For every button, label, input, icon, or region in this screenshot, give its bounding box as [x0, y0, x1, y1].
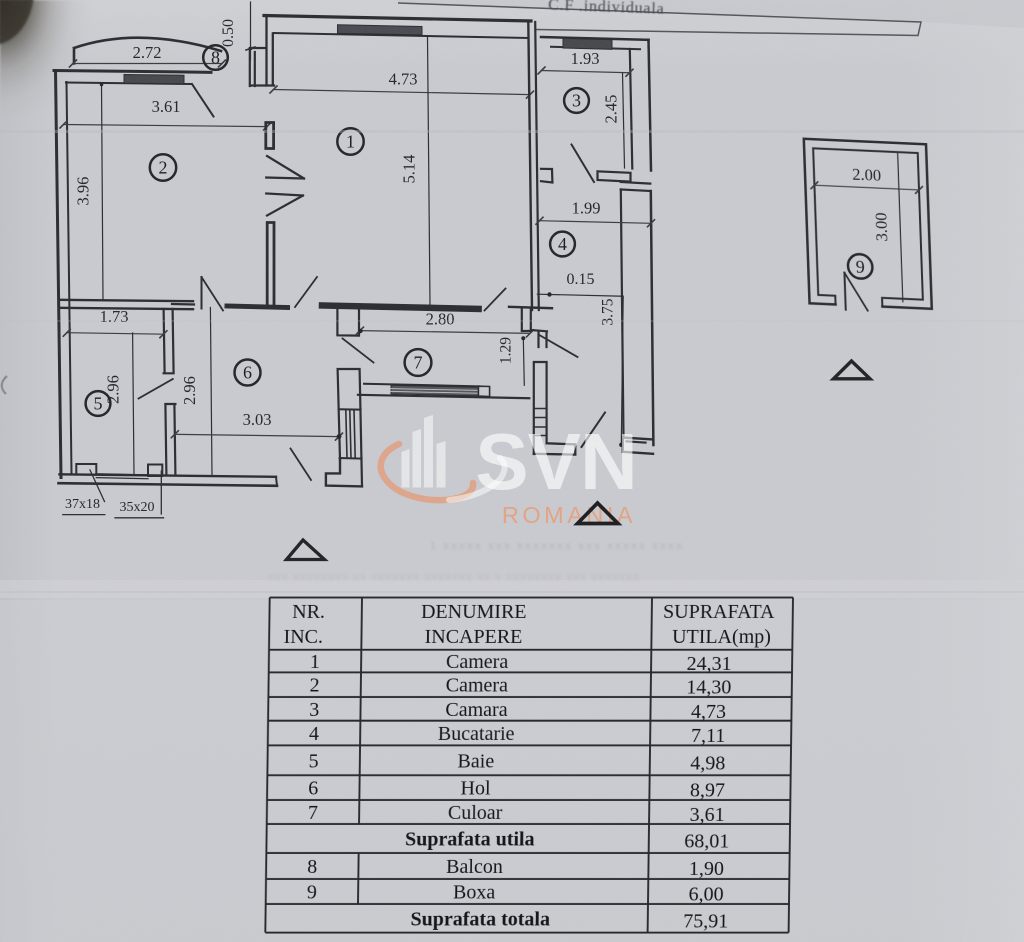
svg-text:NR.: NR.: [292, 601, 325, 623]
svg-text:68,01: 68,01: [684, 831, 729, 853]
svg-text:Culoar: Culoar: [448, 802, 503, 824]
svg-text:Baie: Baie: [457, 750, 494, 772]
svg-text:Balcon: Balcon: [446, 856, 503, 878]
svg-text:Camera: Camera: [446, 651, 509, 673]
svg-text:INC.: INC.: [283, 626, 323, 648]
svg-text:7: 7: [308, 802, 318, 824]
svg-text:SVN: SVN: [475, 417, 637, 506]
svg-text:Hol: Hol: [460, 778, 491, 800]
svg-text:SUPRAFATA: SUPRAFATA: [663, 601, 775, 623]
svg-text:9: 9: [307, 882, 317, 904]
svg-text:1: 1: [310, 651, 320, 673]
svg-text:1 xxxxx xxx xxxxxxx xxx xxxxx: 1 xxxxx xxx xxxxxxx xxx xxxxx xxxx: [430, 538, 684, 552]
svg-text:3: 3: [309, 699, 319, 721]
svg-text:4: 4: [309, 723, 319, 745]
svg-text:14,30: 14,30: [686, 677, 731, 699]
svg-text:Camara: Camara: [445, 699, 508, 721]
svg-text:DENUMIRE: DENUMIRE: [421, 601, 527, 623]
svg-text:3,61: 3,61: [690, 804, 725, 826]
svg-text:5: 5: [309, 750, 319, 772]
svg-text:6,00: 6,00: [688, 884, 723, 906]
svg-text:8: 8: [307, 856, 317, 878]
svg-text:Boxa: Boxa: [453, 882, 496, 904]
svg-text:xxx xxxxxxxx xx xxxxxxx xxxxxx: xxx xxxxxxxx xx xxxxxxx xxxxxxx xx x xxx…: [268, 569, 640, 583]
svg-text:75,91: 75,91: [683, 910, 728, 932]
svg-text:24,31: 24,31: [686, 653, 731, 675]
svg-text:6: 6: [308, 778, 318, 800]
svg-text:4,98: 4,98: [690, 752, 725, 774]
svg-text:UTILA(mp): UTILA(mp): [672, 626, 771, 648]
svg-text:INCAPERE: INCAPERE: [424, 626, 522, 648]
svg-text:Suprafata totala: Suprafata totala: [410, 908, 550, 930]
svg-text:7,11: 7,11: [691, 725, 726, 747]
svg-text:8,97: 8,97: [690, 780, 725, 802]
svg-text:Bucatarie: Bucatarie: [438, 723, 515, 745]
svg-text:Camera: Camera: [446, 675, 509, 697]
svg-text:4,73: 4,73: [691, 701, 726, 723]
svg-text:Suprafata utila: Suprafata utila: [405, 829, 535, 851]
svg-text:1,90: 1,90: [689, 858, 724, 880]
svg-text:2: 2: [310, 675, 320, 697]
